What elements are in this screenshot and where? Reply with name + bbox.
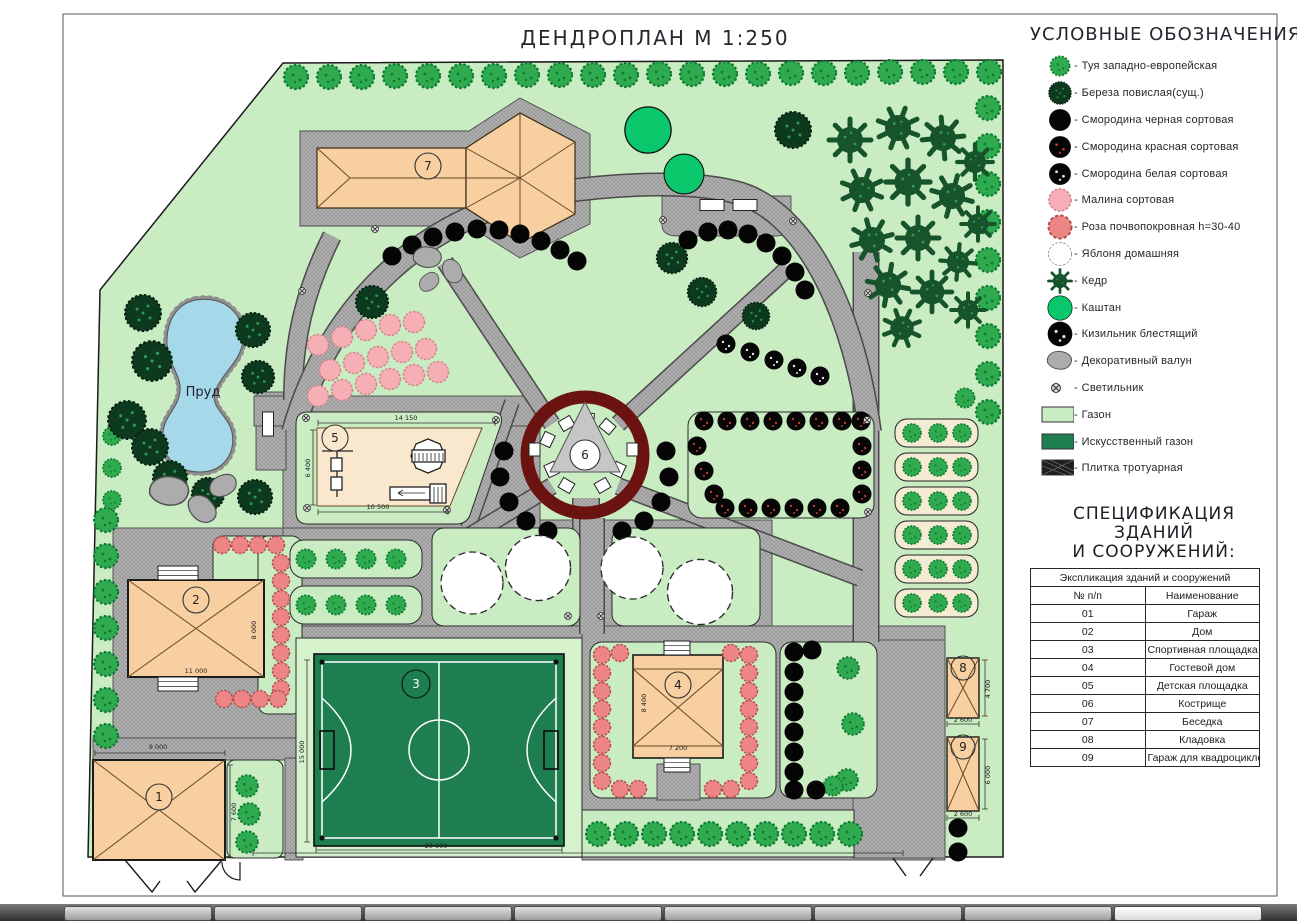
spec-col-num: № п/п [1031, 587, 1146, 605]
bench [733, 200, 757, 211]
dim-garage-height: 7 600 [230, 803, 238, 822]
taskbar-button[interactable] [664, 906, 812, 921]
rose-icon [1030, 214, 1074, 240]
dim-playground-height: 6 400 [304, 459, 312, 478]
spec-table-header: Экспликация зданий и сооружений [1031, 569, 1260, 587]
svg-text:9: 9 [959, 740, 967, 754]
artificial-lawn-icon [1030, 429, 1074, 455]
row-name: Гостевой дом [1145, 659, 1260, 677]
row-num: 05 [1031, 677, 1146, 695]
svg-text:3: 3 [412, 677, 420, 691]
pond-label: Пруд [186, 385, 221, 400]
legend-dash: - [1074, 302, 1078, 314]
legend-dash: - [1074, 328, 1078, 340]
page-title: ДЕНДРОПЛАН М 1:250 [455, 26, 855, 50]
legend-item: - Смородина красная сортовая [1030, 133, 1280, 160]
taskbar-button[interactable] [64, 906, 212, 921]
legend-item-label: Смородина белая сортовая [1082, 168, 1228, 180]
legend-title: УСЛОВНЫЕ ОБОЗНАЧЕНИЯ: [1030, 24, 1280, 45]
legend-item: - Кедр [1030, 267, 1280, 294]
marker-2: 2 [183, 587, 209, 613]
whitecurrant-icon [1030, 161, 1074, 187]
boulder-icon [1030, 348, 1074, 374]
legend-dash: - [1074, 221, 1078, 233]
row-num: 07 [1031, 713, 1146, 731]
legend-dash: - [1074, 60, 1078, 72]
marker-1: 1 [146, 784, 172, 810]
row-num: 06 [1031, 695, 1146, 713]
legend-dash: - [1074, 248, 1078, 260]
taskbar [0, 904, 1297, 921]
cotoneaster-icon [1030, 321, 1074, 347]
legend-dash: - [1074, 114, 1078, 126]
cedar-icon [1030, 268, 1074, 294]
table-row: 08Кладовка [1031, 731, 1260, 749]
legend-item-label: Смородина красная сортовая [1082, 141, 1239, 153]
legend-dash: - [1074, 355, 1078, 367]
legend-item: - Газон [1030, 401, 1280, 428]
legend-item: - Роза почвопокровная h=30-40 [1030, 214, 1280, 241]
legend-item: - Туя западно-европейская [1030, 53, 1280, 80]
legend-item: - Малина сортовая [1030, 187, 1280, 214]
driveway-gates [893, 858, 933, 876]
table-row: 07Беседка [1031, 713, 1260, 731]
taskbar-button[interactable] [214, 906, 362, 921]
legend-item-label: Декоративный валун [1082, 355, 1192, 367]
legend-dash: - [1074, 382, 1078, 394]
spec-col-name: Наименование [1145, 587, 1260, 605]
legend-dash: - [1074, 409, 1078, 421]
legend-item: - Светильник [1030, 375, 1280, 402]
legend-item-label: Искусственный газон [1082, 436, 1194, 448]
row-name: Дом [1145, 623, 1260, 641]
table-row: 04Гостевой дом [1031, 659, 1260, 677]
building-garage [93, 760, 225, 892]
dim-storage-width: 2 600 [954, 716, 973, 724]
taskbar-button[interactable] [364, 906, 512, 921]
legend-dash: - [1074, 194, 1078, 206]
legend-item-label: Яблоня домашняя [1082, 248, 1180, 260]
legend-item-label: Береза повислая(сущ.) [1082, 87, 1204, 99]
dim-house-height: 8 000 [250, 621, 258, 640]
row-num: 08 [1031, 731, 1146, 749]
legend-item: - Плитка тротуарная [1030, 455, 1280, 482]
marker-5: 5 [322, 425, 348, 451]
lawn-icon [1030, 402, 1074, 428]
marker-4: 4 [665, 672, 691, 698]
blackcurrant-icon [1030, 107, 1074, 133]
legend-item-label: Газон [1082, 409, 1111, 421]
svg-text:4: 4 [674, 678, 682, 692]
row-num: 04 [1031, 659, 1146, 677]
dim-house-width: 11 000 [185, 667, 208, 675]
paving-icon [1030, 455, 1074, 481]
taskbar-button[interactable] [814, 906, 962, 921]
legend-item: - Декоративный валун [1030, 348, 1280, 375]
table-row: 05Детская площадка [1031, 677, 1260, 695]
dendroplan-sheet: 9 000 7 600 11 000 8 000 20 000 15 000 1… [0, 0, 1297, 921]
legend-dash: - [1074, 436, 1078, 448]
legend-item-label: Малина сортовая [1082, 194, 1175, 206]
row-num: 03 [1031, 641, 1146, 659]
legend-item: - Каштан [1030, 294, 1280, 321]
legend-item-label: Каштан [1082, 302, 1122, 314]
table-row: 03Спортивная площадка [1031, 641, 1260, 659]
svg-text:5: 5 [331, 431, 339, 445]
legend-item: - Кизильник блестящий [1030, 321, 1280, 348]
row-name: Кострище [1145, 695, 1260, 713]
taskbar-button[interactable] [964, 906, 1112, 921]
dim-guesthouse-width: 7 200 [669, 744, 688, 752]
spec-table: Экспликация зданий и сооружений № п/п На… [1030, 568, 1260, 767]
svg-text:8: 8 [959, 661, 967, 675]
spec-title-line2: И СООРУЖЕНИЙ: [1030, 543, 1278, 562]
legend-item-label: Кизильник блестящий [1082, 328, 1198, 340]
marker-7: 7 [415, 153, 441, 179]
table-row: 01Гараж [1031, 605, 1260, 623]
dim-field-height: 15 000 [298, 741, 306, 764]
legend-dash: - [1074, 141, 1078, 153]
pond-bench [263, 412, 274, 436]
svg-text:7: 7 [424, 159, 432, 173]
dim-garage-width: 9 000 [149, 743, 168, 751]
legend-item-label: Кедр [1082, 275, 1108, 287]
dim-field-width: 20 000 [425, 842, 448, 850]
legend-item-label: Роза почвопокровная h=30-40 [1082, 221, 1241, 233]
thuja-icon [1030, 53, 1074, 79]
table-row: 02Дом [1031, 623, 1260, 641]
legend-item-label: Туя западно-европейская [1082, 60, 1218, 72]
legend-item: - Искусственный газон [1030, 428, 1280, 455]
slide [390, 487, 430, 500]
row-num: 01 [1031, 605, 1146, 623]
bench [700, 200, 724, 211]
redcurrant-icon [1030, 134, 1074, 160]
row-name: Гараж для квадроциклов [1145, 749, 1260, 767]
dim-storage-height: 4 700 [984, 680, 992, 699]
dim-playground-bottom: 10 500 [367, 503, 390, 511]
raspberry-icon [1030, 187, 1074, 213]
legend-item: - Смородина белая сортовая [1030, 160, 1280, 187]
legend-item: - Яблоня домашняя [1030, 241, 1280, 268]
legend-dash: - [1074, 168, 1078, 180]
birch-icon [1030, 80, 1074, 106]
specification-panel: СПЕЦИФИКАЦИЯ ЗДАНИЙ И СООРУЖЕНИЙ: Экспли… [1030, 505, 1278, 767]
taskbar-button[interactable] [1114, 906, 1262, 921]
legend-dash: - [1074, 462, 1078, 474]
legend-panel: УСЛОВНЫЕ ОБОЗНАЧЕНИЯ: - Туя западно-евро… [1030, 24, 1280, 482]
legend-item: - Смородина черная сортовая [1030, 107, 1280, 134]
spec-title-line1: СПЕЦИФИКАЦИЯ ЗДАНИЙ [1030, 505, 1278, 543]
garage-gates [125, 860, 222, 892]
dim-quadgarage-height: 6 000 [984, 766, 992, 785]
dim-quadgarage-width: 2 600 [954, 810, 973, 818]
legend-item: - Береза повислая(сущ.) [1030, 80, 1280, 107]
row-name: Беседка [1145, 713, 1260, 731]
row-num: 09 [1031, 749, 1146, 767]
marker-6: 6 [570, 440, 600, 470]
row-name: Спортивная площадка [1145, 641, 1260, 659]
legend-item-label: Плитка тротуарная [1082, 462, 1183, 474]
table-row: 09Гараж для квадроциклов [1031, 749, 1260, 767]
row-name: Гараж [1145, 605, 1260, 623]
legend-dash: - [1074, 275, 1078, 287]
legend-dash: - [1074, 87, 1078, 99]
table-row: 06Кострище [1031, 695, 1260, 713]
svg-text:2: 2 [192, 593, 200, 607]
taskbar-button[interactable] [514, 906, 662, 921]
sports-field [314, 654, 564, 846]
lamp-icon [1030, 375, 1074, 401]
dim-guesthouse-height: 8 400 [640, 694, 648, 713]
pedestrian-gate [222, 862, 240, 880]
row-name: Кладовка [1145, 731, 1260, 749]
row-name: Детская площадка [1145, 677, 1260, 695]
dim-playground-top: 14 150 [395, 414, 418, 422]
svg-text:6: 6 [581, 448, 589, 462]
svg-text:1: 1 [155, 790, 163, 804]
apple-icon [1030, 241, 1074, 267]
legend-item-label: Смородина черная сортовая [1082, 114, 1234, 126]
row-num: 02 [1031, 623, 1146, 641]
legend-item-label: Светильник [1082, 382, 1144, 394]
chestnut-icon [1030, 295, 1074, 321]
